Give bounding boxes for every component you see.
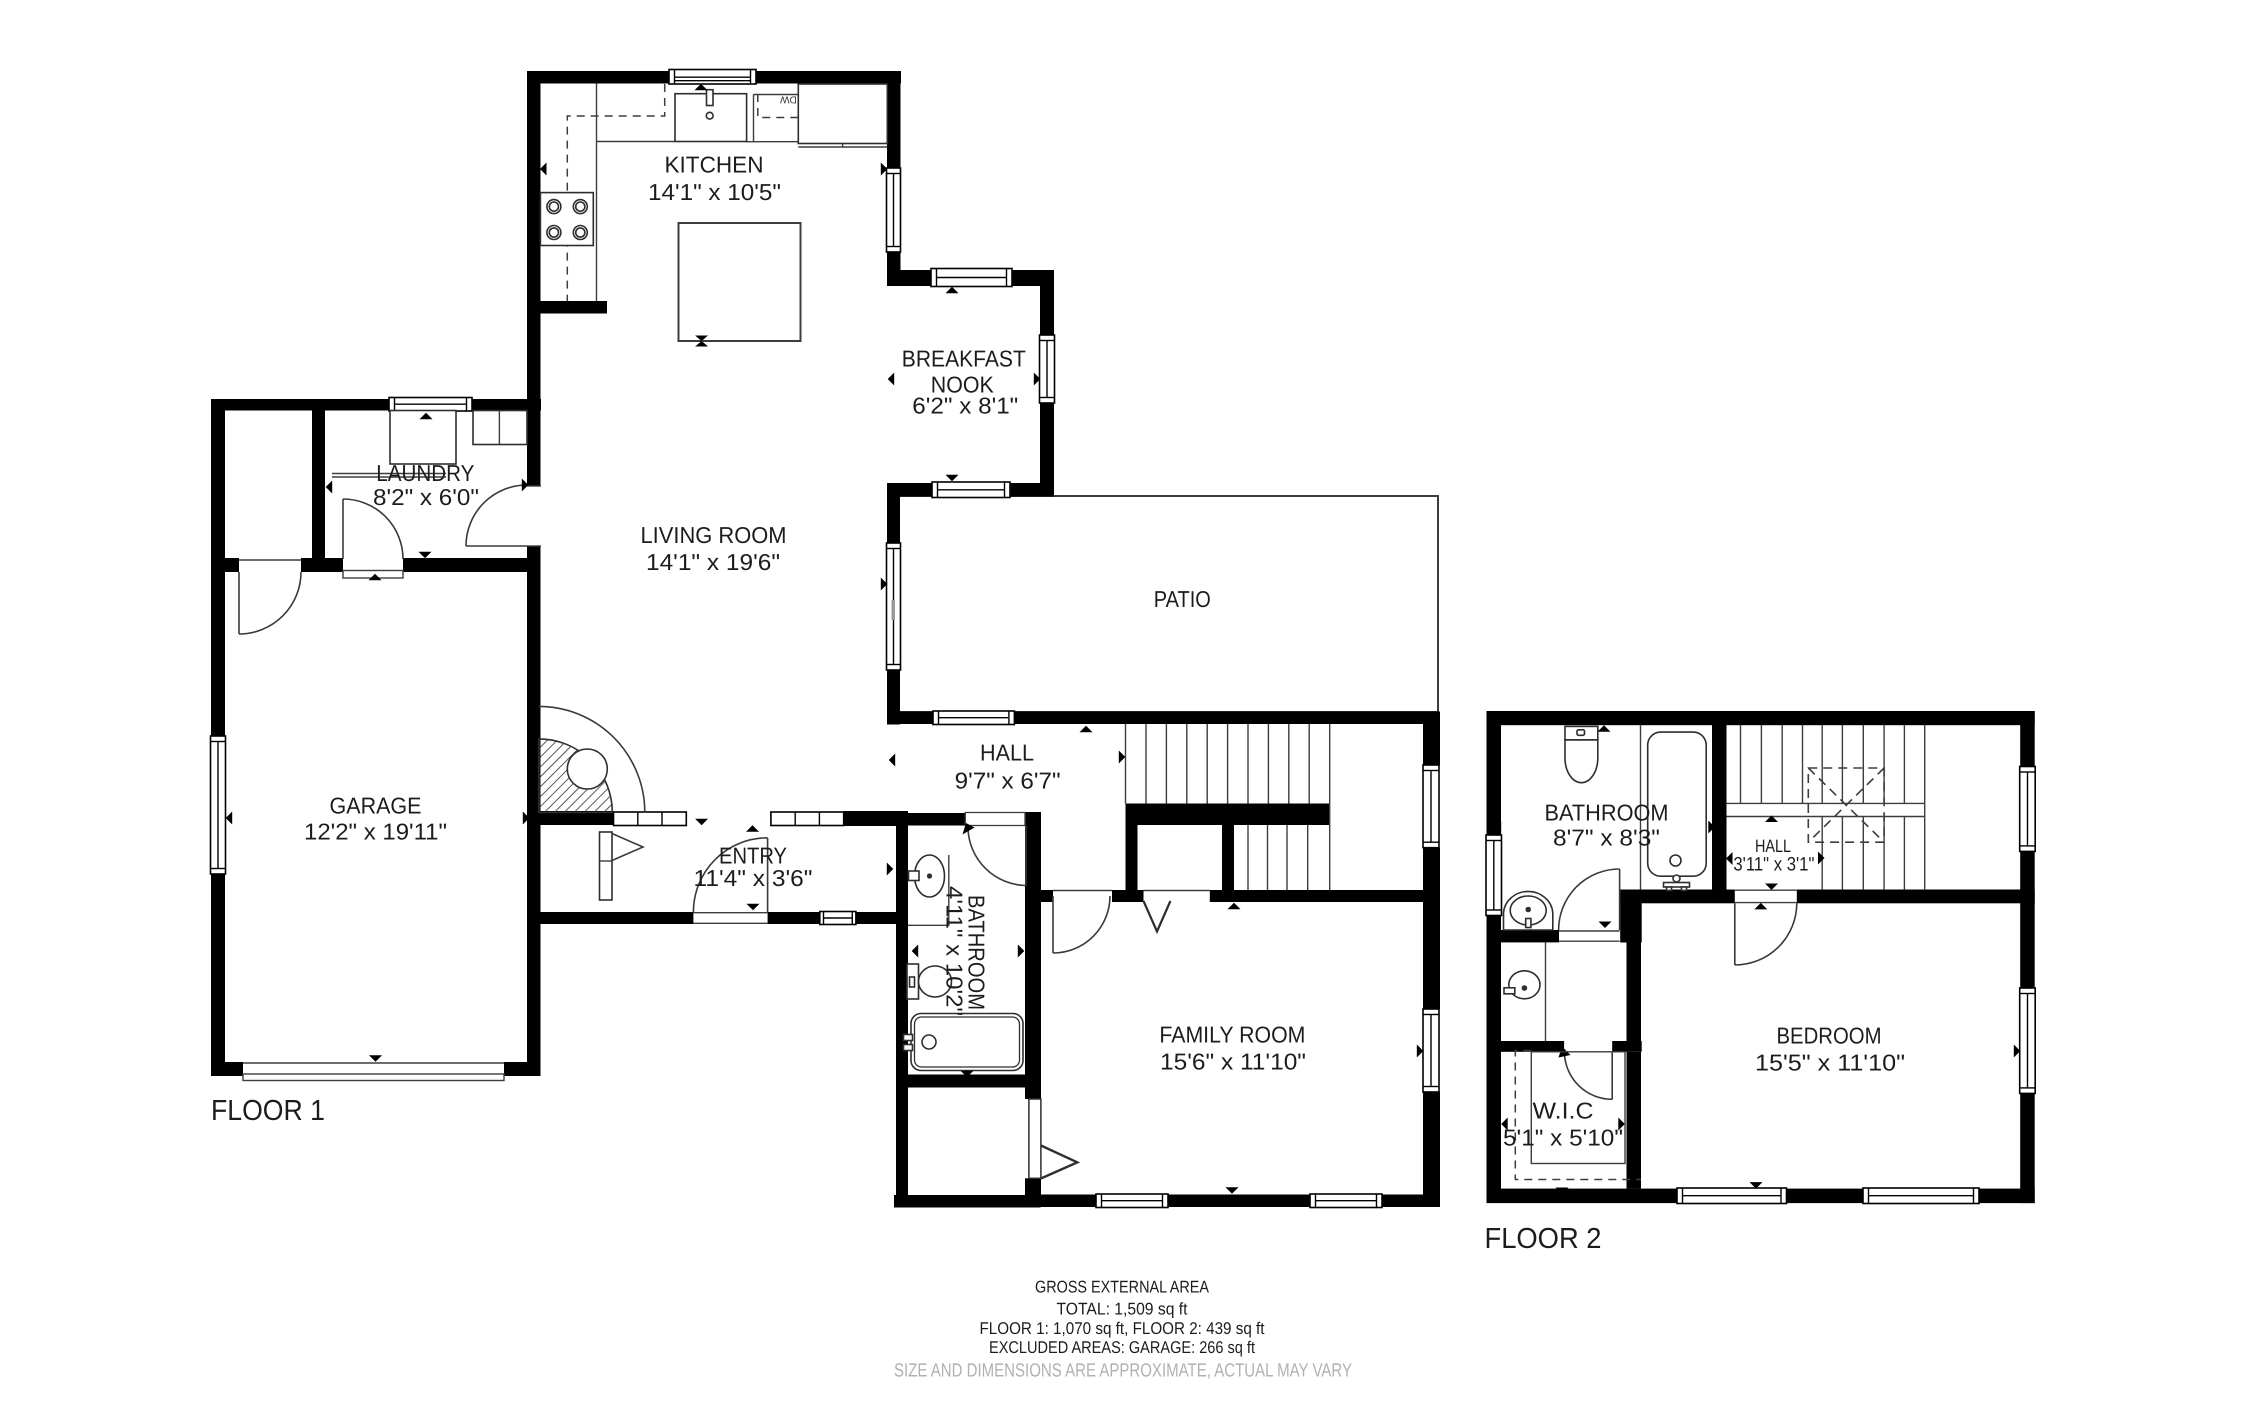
svg-text:BREAKFAST: BREAKFAST: [902, 345, 1026, 371]
svg-text:GROSS EXTERNAL AREA: GROSS EXTERNAL AREA: [1035, 1278, 1210, 1297]
svg-text:BATHROOM: BATHROOM: [1545, 799, 1669, 825]
svg-text:TOTAL: 1,509 sq ft: TOTAL: 1,509 sq ft: [1057, 1300, 1188, 1319]
svg-text:EXCLUDED AREAS: GARAGE: 266 sq: EXCLUDED AREAS: GARAGE: 266 sq ft: [989, 1338, 1255, 1357]
svg-text:KITCHEN: KITCHEN: [665, 152, 764, 178]
svg-text:FLOOR 1: 1,070 sq ft, FLOOR 2:: FLOOR 1: 1,070 sq ft, FLOOR 2: 439 sq ft: [980, 1319, 1265, 1338]
svg-text:9'7" x 6'7": 9'7" x 6'7": [955, 767, 1061, 793]
svg-text:14'1" x 10'5": 14'1" x 10'5": [648, 179, 781, 205]
svg-text:3'11" x 3'1": 3'11" x 3'1": [1733, 854, 1814, 876]
svg-text:FLOOR 1: FLOOR 1: [211, 1095, 325, 1127]
svg-text:SIZE AND DIMENSIONS ARE APPROX: SIZE AND DIMENSIONS ARE APPROXIMATE, ACT…: [894, 1360, 1352, 1381]
svg-text:4'11" x 10'2": 4'11" x 10'2": [942, 886, 968, 1016]
svg-text:GARAGE: GARAGE: [330, 792, 422, 818]
svg-text:8'2" x 6'0": 8'2" x 6'0": [373, 484, 479, 510]
svg-text:LAUNDRY: LAUNDRY: [376, 460, 474, 486]
svg-text:W.I.C: W.I.C: [1533, 1097, 1594, 1123]
svg-text:5'1" x 5'10": 5'1" x 5'10": [1503, 1124, 1623, 1150]
svg-text:12'2" x 19'11": 12'2" x 19'11": [304, 818, 447, 844]
svg-text:HALL: HALL: [980, 739, 1034, 765]
svg-text:DW: DW: [780, 94, 797, 105]
svg-text:15'5" x 11'10": 15'5" x 11'10": [1755, 1049, 1905, 1075]
svg-text:LIVING ROOM: LIVING ROOM: [641, 522, 787, 548]
svg-text:6'2" x 8'1": 6'2" x 8'1": [912, 392, 1018, 418]
svg-text:PATIO: PATIO: [1154, 586, 1211, 612]
svg-text:BEDROOM: BEDROOM: [1777, 1022, 1882, 1048]
svg-text:11'4" x 3'6": 11'4" x 3'6": [694, 865, 813, 891]
svg-text:FAMILY ROOM: FAMILY ROOM: [1159, 1021, 1305, 1047]
svg-text:15'6" x 11'10": 15'6" x 11'10": [1160, 1048, 1306, 1074]
svg-text:14'1" x 19'6": 14'1" x 19'6": [646, 549, 780, 575]
svg-text:8'7" x 8'3": 8'7" x 8'3": [1553, 824, 1660, 850]
svg-text:FLOOR 2: FLOOR 2: [1485, 1223, 1602, 1255]
